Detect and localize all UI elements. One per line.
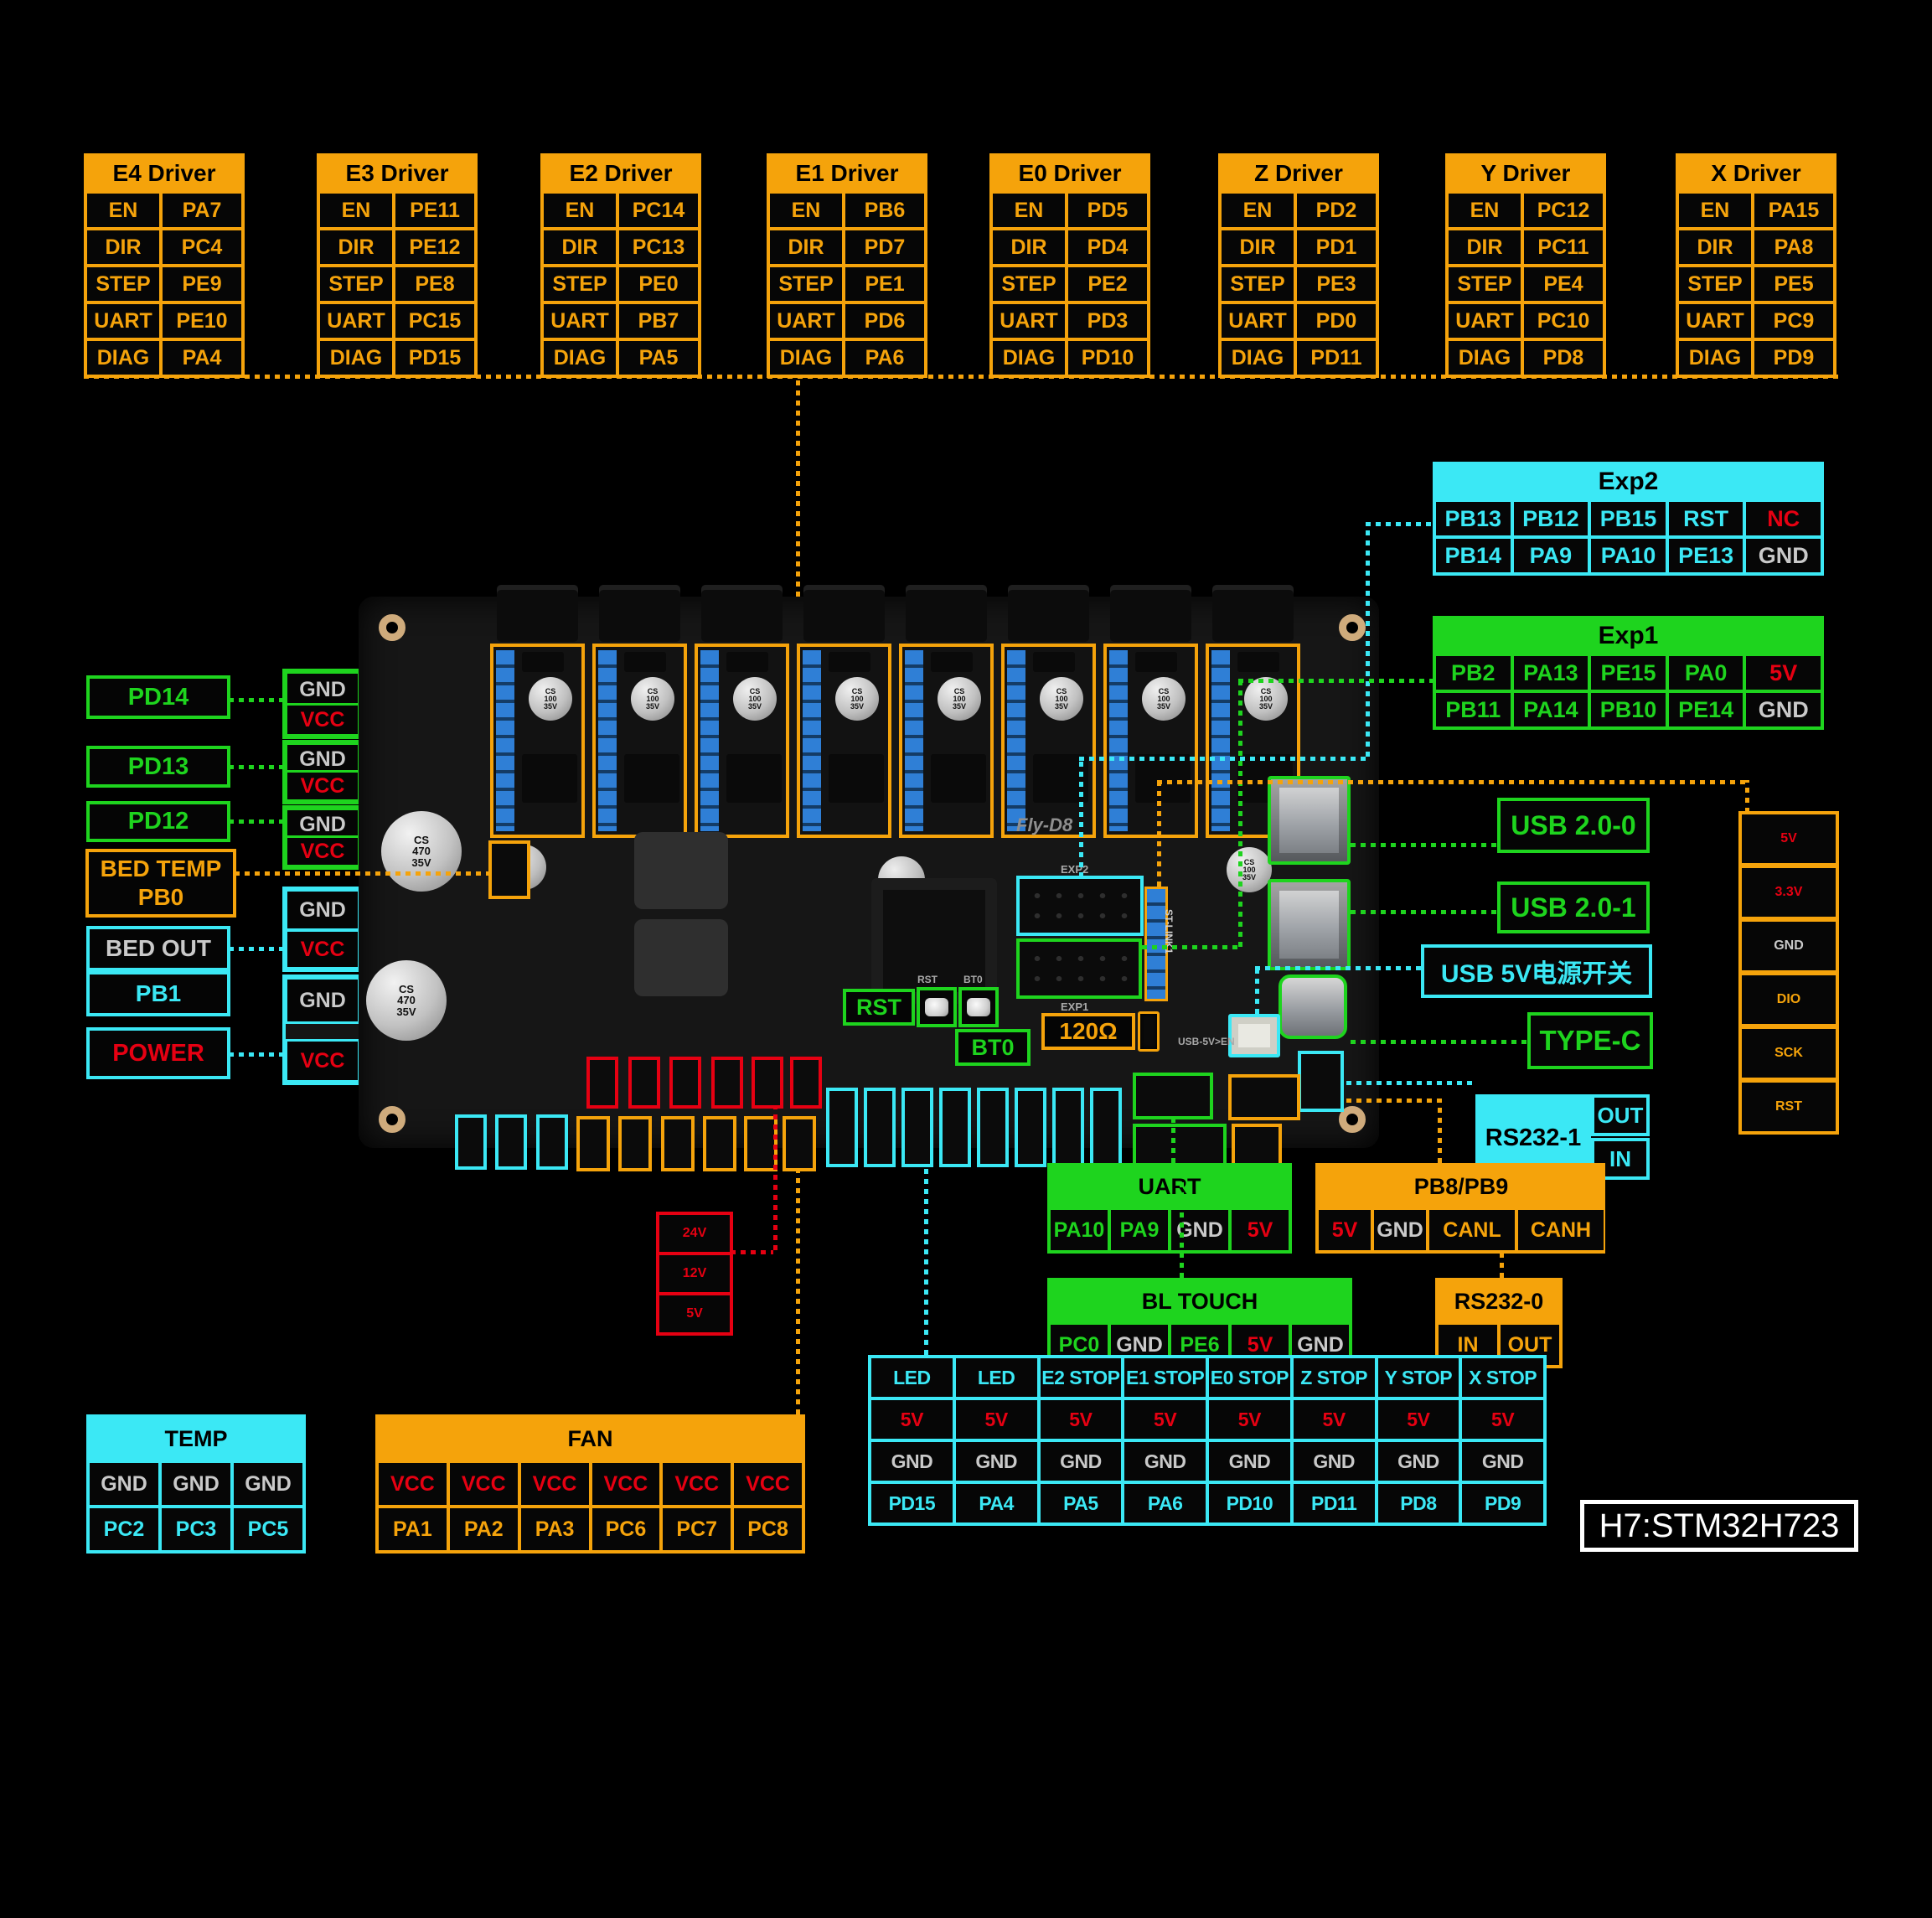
capacitor: CS 100 35V [1244, 677, 1288, 721]
leader-line-orange [1157, 780, 1161, 887]
pin-cell: PA5 [1041, 1484, 1122, 1523]
leader-line-green [229, 819, 282, 824]
leader-line-cyan [1079, 757, 1366, 761]
bltouch-title: BL TOUCH [1051, 1281, 1349, 1321]
leader-line-green [229, 698, 282, 702]
leader-line-orange [1500, 1254, 1504, 1278]
pin-cell: PA4 [956, 1484, 1037, 1523]
leader-line-orange [796, 1171, 800, 1414]
leader-line-cyan [1366, 522, 1370, 757]
fan-connector [744, 1116, 777, 1171]
inductor [634, 919, 728, 996]
inductor [634, 832, 728, 909]
exp1-connector [1016, 938, 1142, 999]
capacitor: CS 100 35V [1040, 677, 1083, 721]
mounting-hole [379, 614, 406, 641]
motor-connector [497, 585, 578, 642]
pin-cell: 5V [1378, 1400, 1459, 1439]
fan-connector [783, 1116, 816, 1171]
pin-cell: PC3 [162, 1508, 230, 1550]
leader-line-green [1351, 1040, 1527, 1044]
leader-line-cyan [1255, 966, 1421, 970]
pin-cell: 24V [659, 1215, 730, 1252]
fan-voltage-jumper [790, 1057, 822, 1109]
pin-cell: E2 STOP [1041, 1358, 1122, 1397]
endstop-connector [1015, 1088, 1046, 1167]
pin-cell: 5V [1462, 1400, 1543, 1439]
bt0-button-box [958, 987, 999, 1027]
driver-header-block [829, 652, 870, 672]
rs232-1-connector [1298, 1051, 1344, 1112]
motor-connector [1110, 585, 1191, 642]
endstop-table: LEDLEDE2 STOPE1 STOPE0 STOPZ STOPY STOPX… [868, 1355, 1547, 1526]
driver-header-block [1135, 652, 1177, 672]
fan-connector [703, 1116, 736, 1171]
leader-line-cyan [229, 1052, 282, 1057]
pin-cell: GND [1209, 1442, 1290, 1481]
capacitor: CS 100 35V [938, 677, 981, 721]
rs232-1-out: OUT [1591, 1094, 1650, 1136]
endstop-connector [901, 1088, 933, 1167]
leader-line-red [773, 1109, 777, 1250]
pin-cell: GND [1462, 1442, 1543, 1481]
driver-header-block [1237, 652, 1279, 672]
pin-cell: VCC [592, 1463, 660, 1505]
pin-cell: 5V [1209, 1400, 1290, 1439]
pin-cell: CANL [1429, 1210, 1515, 1250]
capacitor: CS 100 35V [631, 677, 674, 721]
motor-connector [803, 585, 885, 642]
driver-pin-strip [700, 650, 719, 831]
usb-power-switch [1228, 1014, 1280, 1057]
rs232-0-title: RS232-0 [1439, 1281, 1559, 1321]
pin-cell: PA9 [1111, 1210, 1168, 1250]
driver-header-block [726, 652, 768, 672]
temp-table: TEMPGNDGNDGNDPC2PC3PC5 [86, 1414, 306, 1554]
driver-pin-strip [1109, 650, 1128, 831]
pinout-diagram: E4 DriverENPA7DIRPC4STEPPE9UARTPE10DIAGP… [0, 0, 1932, 1918]
leader-line-green [229, 765, 282, 769]
pin-cell: GND [1378, 1442, 1459, 1481]
fan-connector [618, 1116, 652, 1171]
pin-cell: SCK [1742, 1029, 1836, 1078]
leader-line-cyan [1366, 522, 1433, 526]
pin-cell: 5V [1232, 1210, 1289, 1250]
usb-en-silk: USB-5V>EN [1178, 1036, 1235, 1047]
endstop-connector [1052, 1088, 1084, 1167]
label-120ohm: 120Ω [1041, 1013, 1135, 1050]
leader-line-green [1180, 1169, 1184, 1278]
label-bt0: BT0 [955, 1029, 1031, 1066]
capacitor: CS 100 35V [529, 677, 572, 721]
pin-cell: PC5 [234, 1508, 302, 1550]
pin-cell: PC7 [663, 1508, 731, 1550]
leader-line-green [1171, 1119, 1175, 1163]
leader-line-orange [1157, 780, 1745, 784]
driver-header-block [829, 754, 884, 803]
bt0-silk: BT0 [963, 974, 983, 985]
temp-connector [495, 1114, 527, 1170]
fan-voltage-jumper [586, 1057, 618, 1109]
pin-cell: RST [1742, 1083, 1836, 1131]
pin-cell: GND [1124, 1442, 1206, 1481]
driver-header-block [624, 754, 679, 803]
capacitor: CS 100 35V [1142, 677, 1186, 721]
mcu-label: H7:STM32H723 [1580, 1500, 1858, 1552]
capacitor: CS 100 35V [1227, 847, 1272, 892]
uart-connector [1133, 1073, 1213, 1119]
pin-cell: X STOP [1462, 1358, 1543, 1397]
fan-voltage-jumper [752, 1057, 783, 1109]
usb-a-port-1 [1268, 879, 1351, 970]
exp1-silk: EXP1 [1061, 1000, 1088, 1013]
label-rst: RST [843, 989, 915, 1026]
leader-line-cyan [1346, 1081, 1475, 1085]
leader-line-orange [235, 871, 490, 876]
driver-pin-strip [496, 650, 514, 831]
label-typec: TYPE-C [1527, 1012, 1653, 1069]
capacitor-large: CS 470 35V [366, 960, 447, 1041]
label-usb5v-switch: USB 5V电源开关 [1421, 944, 1652, 998]
leader-line-orange [84, 375, 1839, 379]
driver-header-block [1033, 652, 1075, 672]
pin-cell: 5V [1294, 1400, 1375, 1439]
endstop-connector [939, 1088, 971, 1167]
pin-cell: 5V [1041, 1400, 1122, 1439]
pin-cell: PD11 [1294, 1484, 1375, 1523]
leader-line-orange [1438, 1099, 1442, 1163]
pin-cell: GND [234, 1463, 302, 1505]
leader-line-red [731, 1250, 773, 1254]
label-usb1: USB 2.0-1 [1497, 881, 1650, 933]
leader-line-green [1142, 945, 1238, 949]
pin-cell: E1 STOP [1124, 1358, 1206, 1397]
pin-cell: PD8 [1378, 1484, 1459, 1523]
pin-cell: PD10 [1209, 1484, 1290, 1523]
leader-line-cyan [1079, 757, 1083, 877]
pin-cell: PA3 [521, 1508, 589, 1550]
pin-cell: VCC [734, 1463, 802, 1505]
leader-line-green [1351, 843, 1497, 847]
pin-cell: Y STOP [1378, 1358, 1459, 1397]
pb8pb9-title: PB8/PB9 [1319, 1166, 1604, 1207]
capacitor: CS 100 35V [835, 677, 879, 721]
driver-pin-strip [905, 650, 923, 831]
capacitor: CS 100 35V [733, 677, 777, 721]
label-usb0: USB 2.0-0 [1497, 798, 1650, 853]
leader-line-green [1238, 679, 1433, 683]
pin-cell: PA2 [450, 1508, 518, 1550]
uart-title: UART [1051, 1166, 1289, 1207]
fan-title: FAN [379, 1418, 802, 1460]
pin-cell: DIO [1742, 975, 1836, 1024]
pin-cell: GND [1294, 1442, 1375, 1481]
pin-cell: GND [90, 1463, 158, 1505]
rst-button-box [917, 987, 957, 1027]
mounting-hole [1339, 614, 1366, 641]
driver-header-block [931, 652, 973, 672]
fan-connector [576, 1116, 610, 1171]
driver-pin-strip [598, 650, 617, 831]
pin-cell: PC6 [592, 1508, 660, 1550]
motor-connector [599, 585, 680, 642]
driver-header-block [522, 652, 564, 672]
pin-cell: GND [1041, 1442, 1122, 1481]
endstop-connector [1090, 1088, 1122, 1167]
power-rail-table: 24V12V5V [656, 1212, 733, 1336]
termination-jumper [1138, 1011, 1160, 1052]
leader-line-orange [1346, 1099, 1438, 1103]
leader-line-orange [796, 378, 800, 597]
leader-line-orange [1745, 780, 1749, 813]
pin-cell: LED [871, 1358, 953, 1397]
temp-connector [536, 1114, 568, 1170]
leader-line-green [1351, 910, 1497, 914]
pin-cell: PC8 [734, 1508, 802, 1550]
exp2-connector [1016, 876, 1144, 936]
temp-title: TEMP [90, 1418, 302, 1460]
motor-connector [701, 585, 783, 642]
pin-cell: 5V [871, 1400, 953, 1439]
bed-temp-connector [488, 840, 530, 899]
pin-cell: PD9 [1462, 1484, 1543, 1523]
pin-cell: PA1 [379, 1508, 447, 1550]
mounting-hole [379, 1106, 406, 1133]
pin-cell: E0 STOP [1209, 1358, 1290, 1397]
fan-connector [661, 1116, 695, 1171]
pin-cell: 5V [1124, 1400, 1206, 1439]
pin-cell: 3.3V [1742, 868, 1836, 917]
pin-cell: GND [1742, 922, 1836, 970]
driver-pin-strip [803, 650, 821, 831]
pin-cell: GND [162, 1463, 230, 1505]
uart-table: UARTPA10PA9GND5V [1047, 1163, 1292, 1254]
fan-voltage-jumper [711, 1057, 743, 1109]
bltouch-connector [1133, 1124, 1227, 1169]
pin-cell: GND [1374, 1210, 1426, 1250]
motor-connector [1008, 585, 1089, 642]
motor-connector [1212, 585, 1294, 642]
leader-line-cyan [1255, 966, 1259, 1014]
pin-cell: 5V [659, 1295, 730, 1332]
pin-cell: 5V [1319, 1210, 1371, 1250]
swd-pin-column: 5V3.3VGNDDIOSCKRST [1738, 811, 1839, 1135]
endstop-connector [826, 1088, 858, 1167]
pb8pb9-connector [1228, 1074, 1300, 1120]
pin-cell: 5V [1742, 814, 1836, 863]
endstop-connector [864, 1088, 896, 1167]
pin-cell: VCC [379, 1463, 447, 1505]
pin-cell: CANH [1518, 1210, 1604, 1250]
rst-silk: RST [917, 974, 938, 985]
driver-header-block [726, 754, 782, 803]
pin-cell: GND [871, 1442, 953, 1481]
usb-a-port-0 [1268, 776, 1351, 865]
driver-pin-strip [1211, 650, 1230, 831]
pin-cell: VCC [663, 1463, 731, 1505]
leader-line-cyan [229, 947, 282, 951]
motor-connector [906, 585, 987, 642]
endstop-connector [977, 1088, 1009, 1167]
capacitor-large: CS 470 35V [381, 811, 462, 892]
pin-cell: VCC [450, 1463, 518, 1505]
fan-voltage-jumper [628, 1057, 660, 1109]
pin-cell: LED [956, 1358, 1037, 1397]
exp2-silk: EXP2 [1061, 863, 1088, 876]
leader-line-cyan [924, 1167, 928, 1355]
rst-button [925, 998, 948, 1016]
pin-cell: GND [956, 1442, 1037, 1481]
driver-pin-strip [1007, 650, 1025, 831]
rs232-0-connector [1232, 1124, 1282, 1169]
pin-cell: PA10 [1051, 1210, 1108, 1250]
leader-line-green [1238, 679, 1242, 947]
driver-header-block [522, 754, 577, 803]
bt0-button [967, 998, 990, 1016]
pin-cell: PC2 [90, 1508, 158, 1550]
pb8pb9-table: PB8/PB95VGNDCANLCANH [1315, 1163, 1605, 1254]
board-name-silk: Fly-D8 [1016, 814, 1072, 836]
fan-voltage-jumper [669, 1057, 701, 1109]
temp-connector [455, 1114, 487, 1170]
typec-port [1279, 975, 1347, 1039]
pin-cell: PA6 [1124, 1484, 1206, 1523]
driver-header-block [1135, 754, 1191, 803]
driver-header-block [624, 652, 666, 672]
fan-table: FANVCCVCCVCCVCCVCCVCCPA1PA2PA3PC6PC7PC8 [375, 1414, 805, 1554]
pin-cell: 12V [659, 1255, 730, 1292]
driver-header-block [931, 754, 986, 803]
pin-cell: 5V [956, 1400, 1037, 1439]
pin-cell: VCC [521, 1463, 589, 1505]
pin-cell: Z STOP [1294, 1358, 1375, 1397]
pin-cell: PD15 [871, 1484, 953, 1523]
